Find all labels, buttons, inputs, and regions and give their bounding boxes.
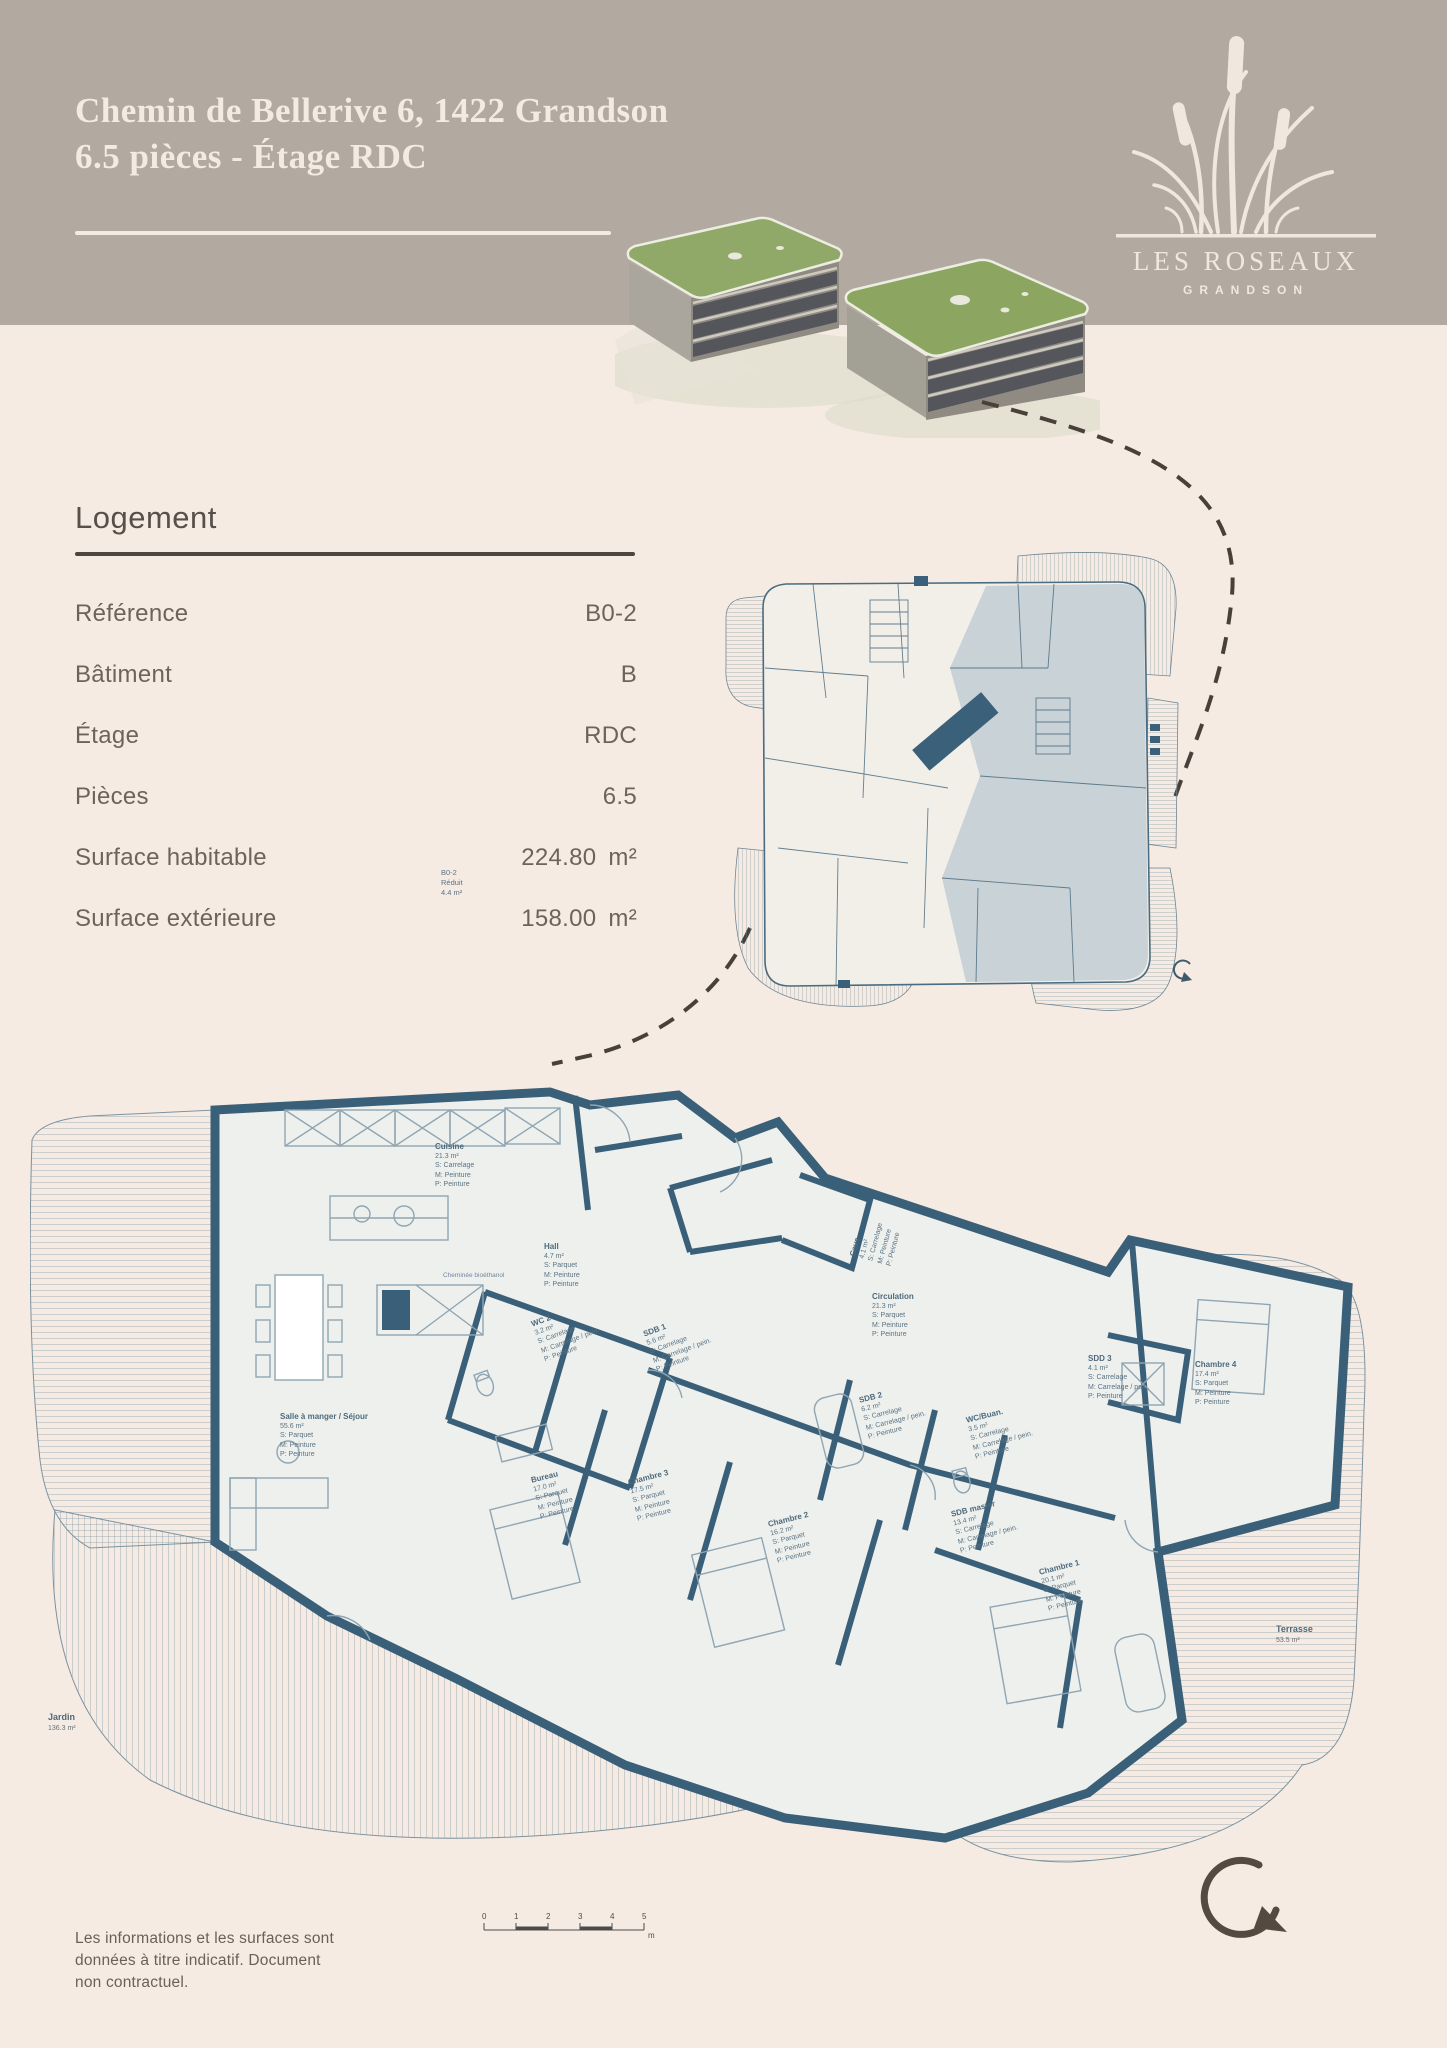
- row-label: Surface extérieure: [75, 905, 277, 933]
- logement-section: Logement Référence B0-2 Bâtiment B Étage…: [75, 500, 637, 966]
- row-label: Bâtiment: [75, 661, 172, 689]
- table-row: Bâtiment B: [75, 661, 637, 722]
- scale-tick: 0: [482, 1912, 487, 1921]
- scale-tick: 1: [514, 1912, 519, 1921]
- scale-tick: 4: [610, 1912, 615, 1921]
- scale-bar: 0 1 2 3 4 5 m: [476, 1906, 656, 1948]
- north-orientation-icon: [1188, 1846, 1296, 1954]
- floorplan-drawing: [30, 1080, 1370, 1880]
- page-title-line1: Chemin de Bellerive 6, 1422 Grandson: [75, 88, 669, 134]
- scale-tick: 2: [546, 1912, 551, 1921]
- reeds-icon: [1093, 26, 1399, 244]
- table-row: Surface habitable 224.80m²: [75, 844, 637, 905]
- row-label: Étage: [75, 722, 139, 750]
- building-rendering: [615, 210, 1100, 438]
- row-label: Surface habitable: [75, 844, 267, 872]
- scale-tick: 3: [578, 1912, 583, 1921]
- table-row: Étage RDC: [75, 722, 637, 783]
- row-value: RDC: [584, 722, 637, 750]
- scale-tick: 5: [642, 1912, 647, 1921]
- table-row: Surface extérieure 158.00m²: [75, 905, 637, 966]
- row-value: 6.5: [603, 783, 637, 811]
- logo-subname: GRANDSON: [1093, 283, 1399, 297]
- logement-underline: [75, 552, 635, 556]
- disclaimer-text: Les informations et les surfaces sont do…: [75, 1928, 415, 1994]
- logement-title: Logement: [75, 500, 637, 536]
- table-row: Référence B0-2: [75, 600, 637, 661]
- brochure-page: { "header": { "title_line1": "Chemin de …: [0, 0, 1447, 2048]
- overview-orientation-icon: [1174, 961, 1192, 982]
- row-value: 224.80m²: [521, 844, 637, 872]
- reduit-label: B0-2 Réduit 4.4 m²: [441, 868, 463, 898]
- row-value: 158.00m²: [521, 905, 637, 933]
- scale-unit: m: [648, 1931, 655, 1940]
- logo-name: LES ROSEAUX: [1093, 246, 1399, 277]
- row-value: B: [621, 661, 637, 689]
- page-title: Chemin de Bellerive 6, 1422 Grandson 6.5…: [75, 88, 669, 180]
- overview-floorplan: [718, 548, 1200, 1020]
- page-title-line2: 6.5 pièces - Étage RDC: [75, 134, 669, 180]
- logement-table: Référence B0-2 Bâtiment B Étage RDC Pièc…: [75, 600, 637, 966]
- table-row: Pièces 6.5: [75, 783, 637, 844]
- title-underline: [75, 231, 611, 235]
- brand-logo: LES ROSEAUX GRANDSON: [1093, 26, 1399, 297]
- row-label: Référence: [75, 600, 188, 628]
- apartment-floorplan: Salle à manger / Séjour55.6 m² S: Parque…: [30, 1080, 1370, 1880]
- row-label: Pièces: [75, 783, 149, 811]
- row-value: B0-2: [585, 600, 637, 628]
